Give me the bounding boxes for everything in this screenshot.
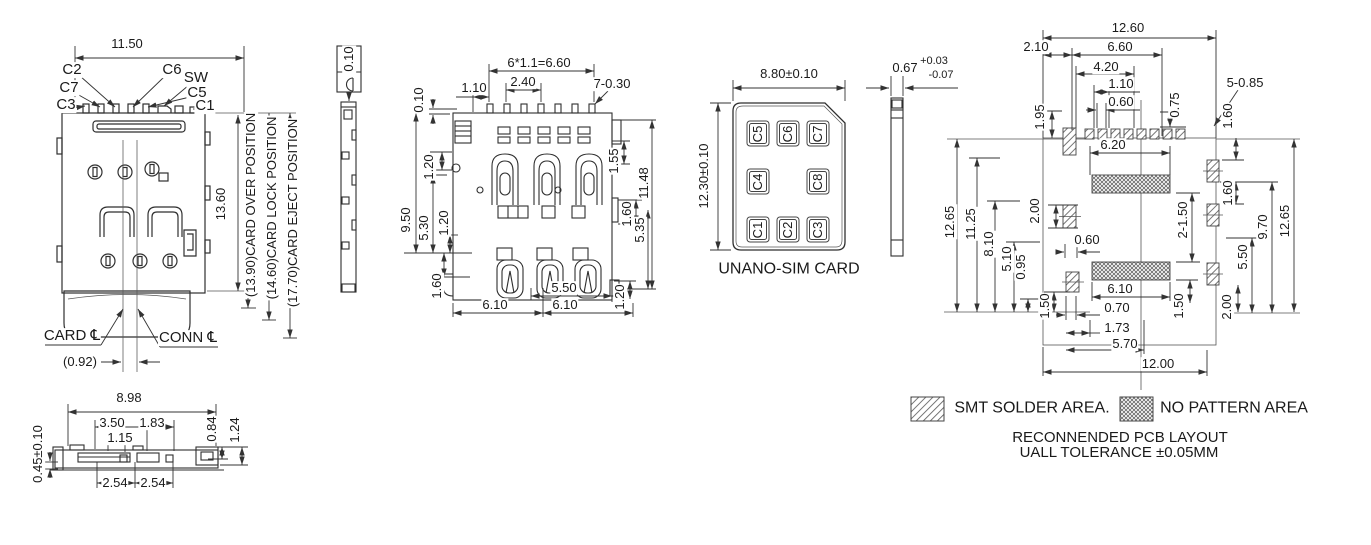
technical-drawing-page: 11.50 C2 C7 C3 C6 SW C5 C1 13.60 (13.90)… <box>0 0 1371 545</box>
drawing-linework <box>0 0 1371 545</box>
